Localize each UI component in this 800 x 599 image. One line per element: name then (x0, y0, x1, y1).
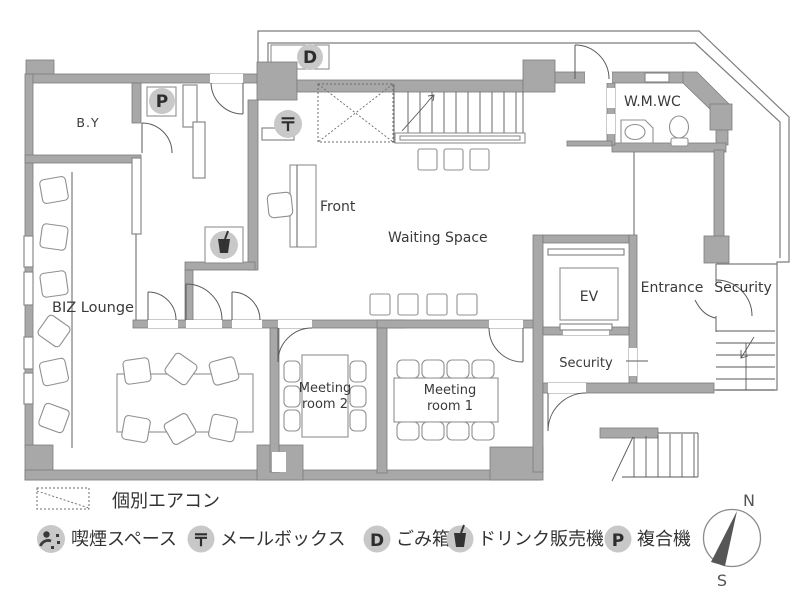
door-gap (607, 88, 615, 108)
wall-ev-left (533, 235, 543, 472)
chair (350, 361, 366, 382)
label-security-inner: Security (559, 356, 613, 371)
label-meeting1-line2: room 1 (427, 399, 473, 414)
door-gap (629, 348, 637, 376)
chair (208, 414, 238, 443)
door-arc (211, 83, 243, 114)
elevator (548, 249, 624, 320)
ev-shaft-line (548, 249, 624, 255)
window (24, 272, 33, 305)
door-gap (232, 320, 262, 328)
chair (397, 360, 419, 378)
legend-vending: ドリンク販売機 (447, 525, 605, 553)
label-meeting2-line2: room 2 (302, 397, 348, 412)
chair (284, 410, 300, 431)
legend-aircon-box (37, 488, 89, 509)
chair (447, 422, 469, 440)
door-gap (548, 383, 586, 393)
wall-right-upper (714, 150, 724, 238)
toilet-base (671, 138, 688, 146)
smoking-icon-dot (56, 534, 59, 537)
wall-waiting-west (248, 100, 258, 270)
door-gap (148, 320, 178, 328)
door-gap (278, 320, 312, 328)
floorplan-canvas: D P 〒 B.Y BIZ Lounge Front Waiting Space… (0, 0, 800, 599)
wall-by-bottom (25, 155, 141, 163)
legend-vending-label: ドリンク販売機 (478, 529, 604, 550)
wall-meeting-divider (377, 328, 387, 473)
legend-trash-label: ごみ箱 (396, 529, 450, 550)
stair-treads (634, 434, 694, 477)
label-security-right: Security (714, 280, 772, 296)
door-arc (548, 393, 586, 431)
stair-treads (408, 92, 516, 133)
trash-icon-letter: D (370, 531, 384, 551)
wall-right-block (704, 236, 729, 263)
door-arc (142, 123, 172, 153)
wall-by-right (132, 83, 141, 123)
stairs-right (716, 331, 775, 390)
chair (267, 192, 293, 218)
wall-ev-top (543, 235, 629, 243)
stairs-top (394, 84, 525, 143)
compass-circle (704, 510, 761, 567)
legend-smoking-label: 喫煙スペース (71, 529, 177, 550)
compass: N S (704, 491, 761, 590)
compass-south-label: S (717, 571, 727, 590)
chair (39, 223, 68, 250)
compass-north-label: N (743, 491, 755, 510)
stairs-diagonal (612, 437, 633, 481)
legend-smoking: 喫煙スペース (37, 525, 177, 553)
elevator-door-panel (560, 324, 612, 330)
window (24, 236, 33, 267)
legend-mailbox-label: メールボックス (220, 529, 345, 550)
legend-aircon-diag (37, 491, 89, 508)
stairs-direction-line (402, 95, 434, 131)
chair (472, 360, 494, 378)
legend-trash: D ごみ箱 (364, 526, 451, 553)
partition-closet1 (183, 85, 197, 127)
stairs-rail-inner (400, 136, 520, 140)
legend-mailbox: 〒 メールボックス (188, 526, 346, 553)
wall-junction-block2 (523, 60, 555, 92)
label-meeting2-line1: Meeting (299, 381, 351, 396)
chair (121, 415, 151, 443)
legend: 個別エアコン 喫煙スペース 〒 メールボックス D ごみ箱 ドリンク販売機 (37, 488, 691, 553)
chair (39, 358, 69, 387)
toilet-bowl (670, 116, 689, 138)
window (645, 73, 669, 82)
stool (418, 149, 437, 170)
window (24, 373, 33, 404)
wall-junction-block1 (257, 62, 297, 100)
chair (447, 360, 469, 378)
partition-biz (132, 158, 141, 234)
wall-top-right1 (555, 72, 585, 83)
chair (122, 357, 151, 384)
stairs-exterior (612, 433, 698, 481)
mailbox-icon-symbol: 〒 (193, 531, 210, 551)
stool (457, 294, 477, 315)
legend-copier: P 複合機 (605, 526, 692, 553)
mailbox-icon-symbol: 〒 (279, 115, 297, 136)
legend-aircon-label: 個別エアコン (112, 491, 220, 512)
smoking-icon-head (43, 531, 49, 537)
chair (284, 386, 300, 407)
wall-top-mid (297, 80, 523, 92)
chair (472, 422, 494, 440)
door-arc (489, 328, 523, 362)
door-gap (210, 74, 243, 83)
meeting2-furniture (284, 355, 366, 437)
meeting2-table (302, 355, 348, 437)
label-ev: EV (580, 289, 599, 305)
trash-icon-letter: D (303, 48, 317, 68)
partition-closet2 (193, 122, 205, 178)
wall-notch (272, 452, 286, 472)
window (24, 337, 33, 369)
label-meeting1-line1: Meeting (424, 383, 476, 398)
printer-icon-letter: P (156, 92, 168, 112)
stool (398, 294, 418, 315)
smoking-icon-dot (51, 546, 54, 549)
chair (39, 270, 68, 297)
chair (36, 314, 71, 349)
door-gap (489, 320, 523, 328)
label-biz-lounge: BIZ Lounge (52, 300, 134, 316)
door-gap (585, 72, 612, 83)
chair (422, 422, 444, 440)
legend-aircon: 個別エアコン (37, 488, 220, 512)
ac-unit (318, 84, 393, 142)
wall-ext-stair-landing (600, 428, 658, 438)
chair (350, 386, 366, 407)
wall-wc-corner-block (710, 104, 732, 130)
washbasin (625, 125, 645, 140)
label-wc: W.M.WC (624, 94, 681, 110)
legend-copier-label: 複合機 (637, 529, 691, 550)
stool (470, 149, 489, 170)
wall-stub-wc (567, 141, 612, 146)
label-entrance: Entrance (641, 280, 704, 296)
stool (427, 294, 447, 315)
label-waiting: Waiting Space (388, 230, 488, 246)
door-gap (186, 320, 222, 328)
front-desk (290, 165, 316, 247)
printer-icon-letter: P (612, 531, 624, 551)
chair (39, 176, 69, 204)
chair (284, 361, 300, 382)
front-desk-area (267, 165, 316, 247)
stair-treads (716, 331, 775, 390)
stool (370, 294, 390, 315)
cup-glyph (454, 533, 466, 547)
wall-wc-bottom (612, 143, 726, 152)
label-by: B.Y (76, 115, 99, 130)
door-arc (232, 292, 260, 320)
smoking-icon-dot (57, 541, 60, 544)
label-front: Front (320, 199, 356, 215)
chair (422, 360, 444, 378)
stool (444, 149, 463, 170)
chair (38, 402, 71, 433)
wc-fixtures (621, 116, 689, 146)
floorplan-page: D P 〒 B.Y BIZ Lounge Front Waiting Space… (0, 0, 800, 599)
door-arc (148, 292, 176, 320)
door-arc (695, 300, 716, 318)
door-gap (607, 114, 615, 134)
chair (350, 410, 366, 431)
chair (397, 422, 419, 440)
